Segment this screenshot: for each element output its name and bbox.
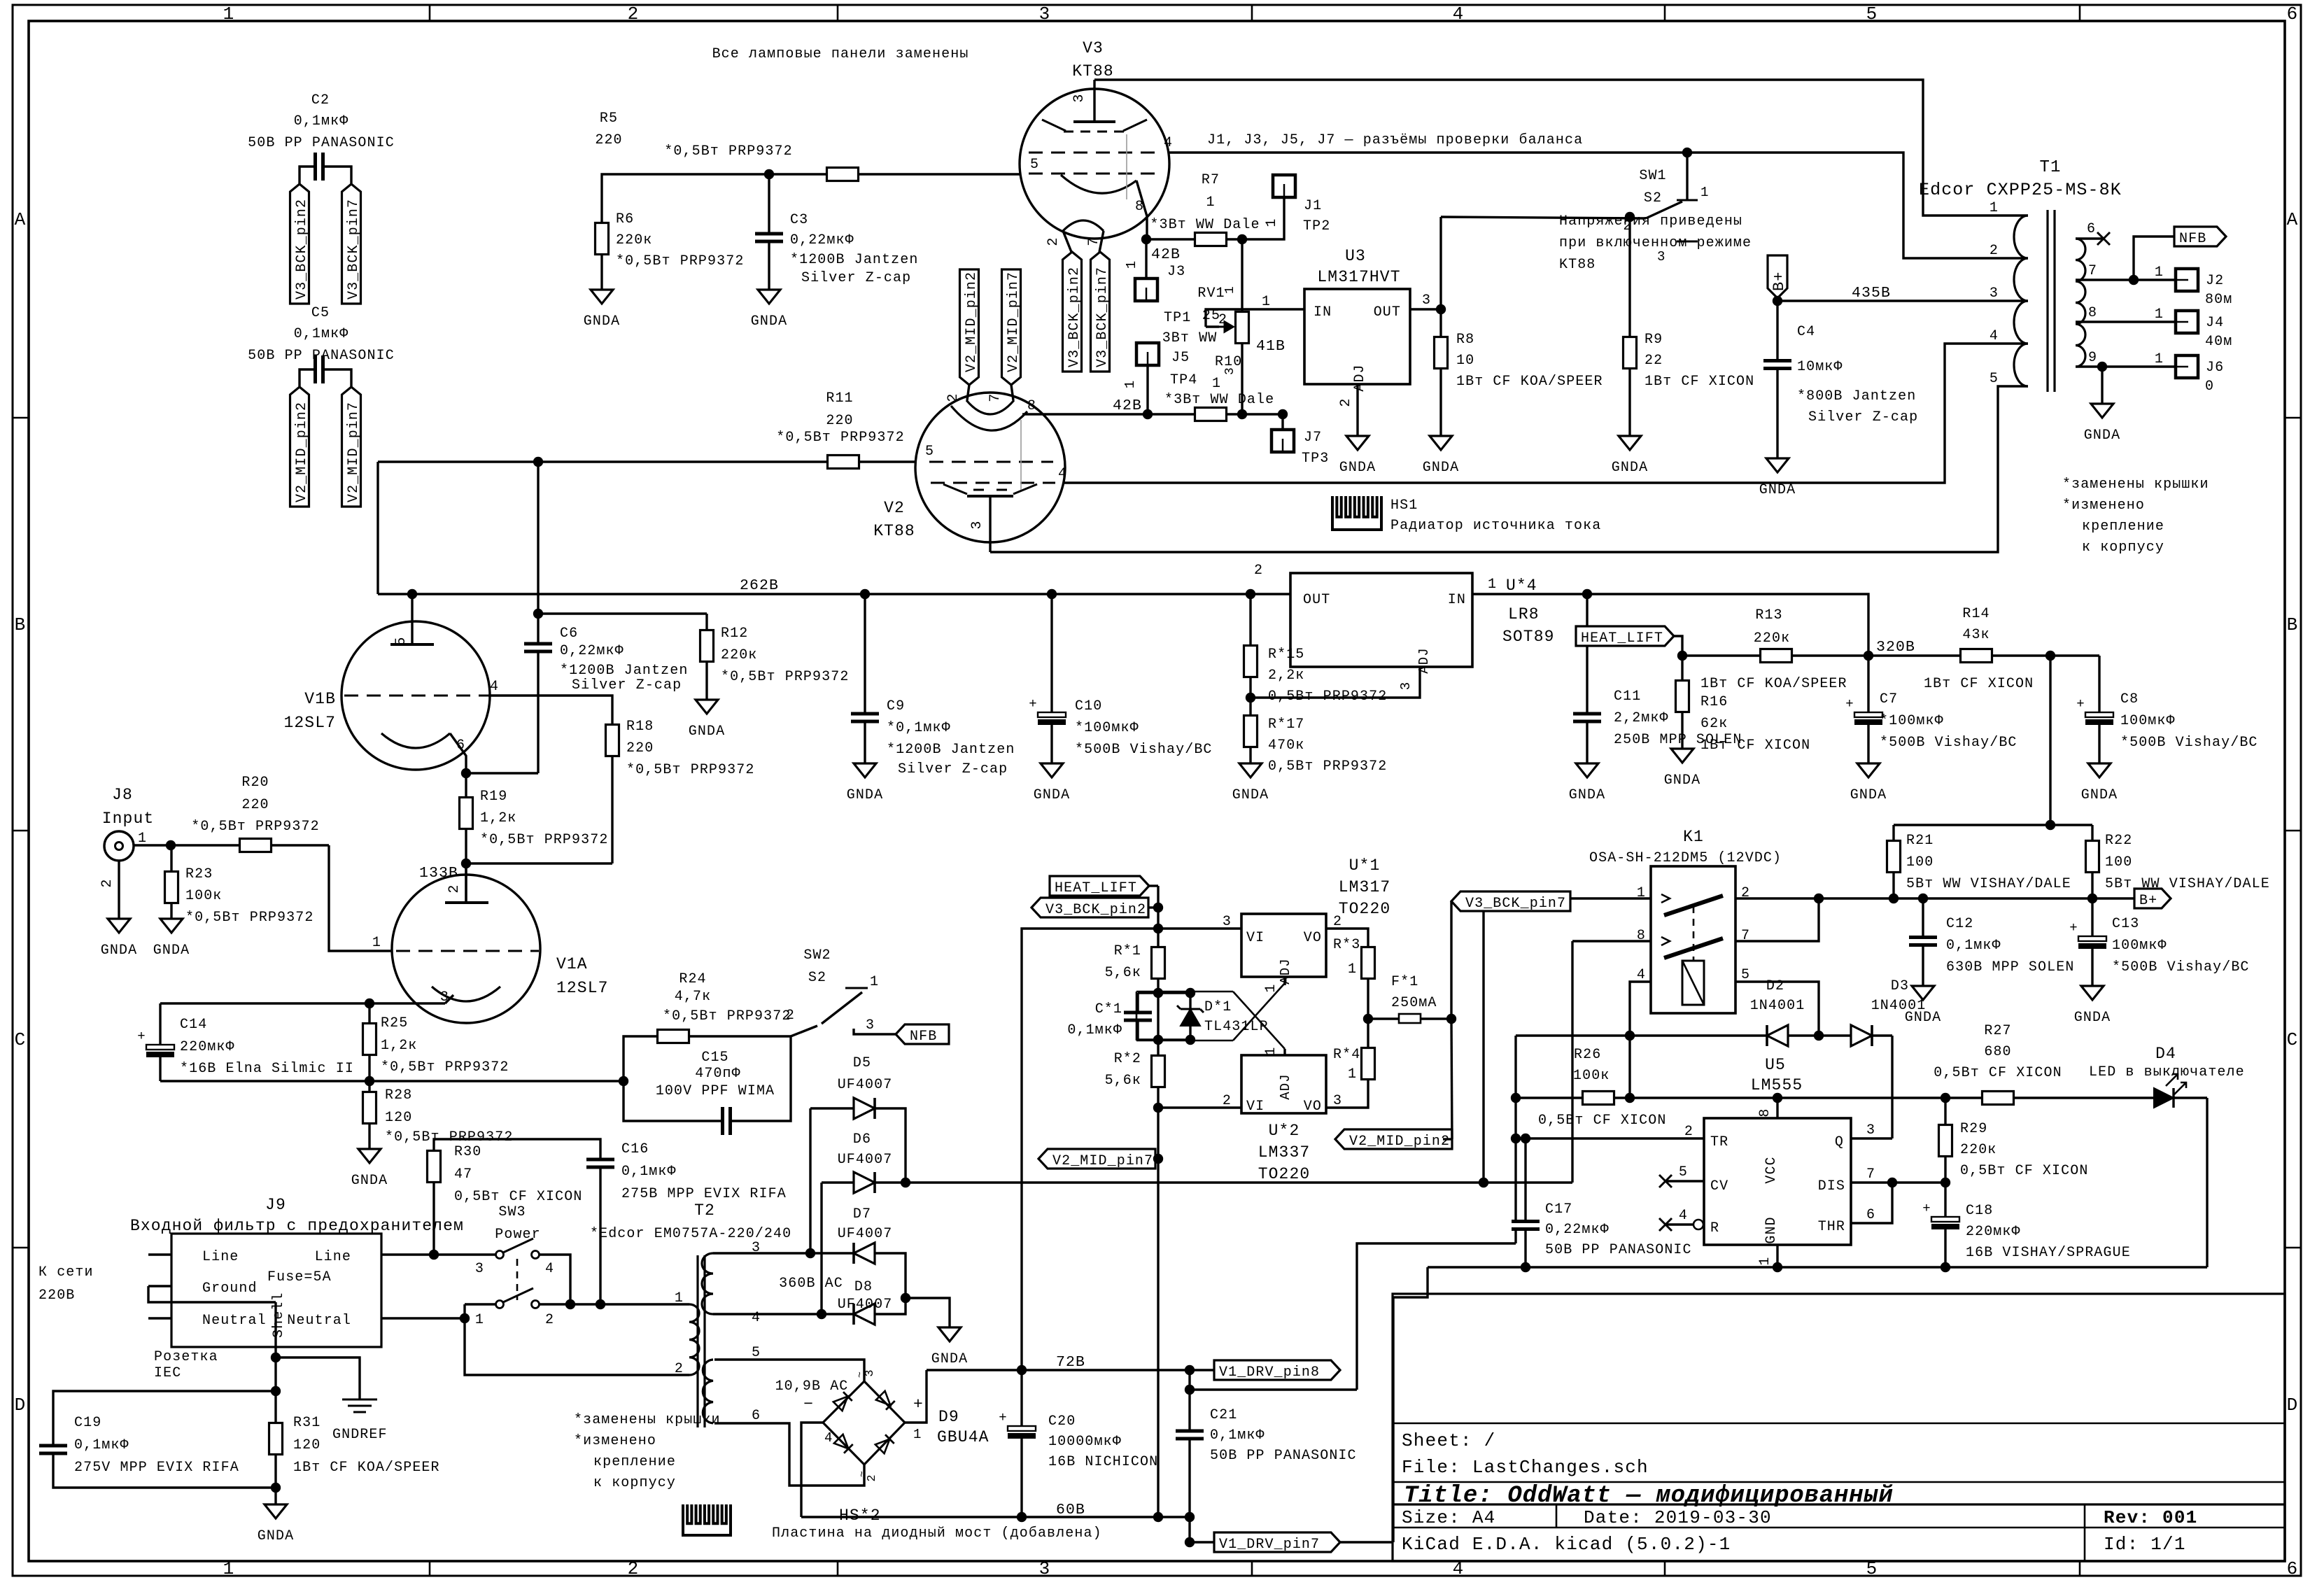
svg-text:V3_BCK_pin2: V3_BCK_pin2	[294, 199, 310, 299]
svg-text:*0,5Вт PRP9372: *0,5Вт PRP9372	[776, 430, 904, 446]
svg-text:*3Вт WW Dale: *3Вт WW Dale	[1150, 217, 1260, 233]
svg-text:IEC: IEC	[154, 1365, 181, 1381]
svg-text:LR8: LR8	[1508, 605, 1540, 623]
svg-text:GNDA: GNDA	[351, 1173, 388, 1189]
svg-text:1: 1	[1757, 1256, 1773, 1265]
svg-text:42B: 42B	[1151, 246, 1181, 263]
svg-text:5Вт WW VISHAY/DALE: 5Вт WW VISHAY/DALE	[1906, 876, 2071, 892]
svg-text:*0,5Вт PRP9372: *0,5Вт PRP9372	[191, 819, 319, 835]
svg-text:C7: C7	[1880, 691, 1898, 707]
svg-text:12SL7: 12SL7	[556, 979, 609, 997]
svg-text:GNDA: GNDA	[931, 1351, 968, 1367]
svg-text:Rev: 001: Rev: 001	[2104, 1507, 2197, 1528]
svg-text:D5: D5	[853, 1055, 871, 1071]
svg-text:R: R	[1710, 1220, 1719, 1236]
svg-text:GBU4A: GBU4A	[937, 1428, 990, 1446]
svg-text:J3: J3	[1167, 264, 1185, 280]
svg-text:3: 3	[1039, 3, 1051, 24]
svg-text:220к: 220к	[1960, 1142, 1996, 1158]
svg-text:Радиатор источника тока: Радиатор источника тока	[1390, 518, 1601, 534]
svg-text:4: 4	[545, 1261, 554, 1277]
svg-text:GNDA: GNDA	[258, 1528, 294, 1544]
svg-text:SW1: SW1	[1639, 168, 1666, 184]
svg-text:100: 100	[2105, 854, 2132, 870]
svg-text:GND: GND	[1763, 1216, 1780, 1243]
svg-text:5: 5	[1990, 371, 1999, 387]
svg-text:Напряжения приведены: Напряжения приведены	[1559, 213, 1742, 230]
svg-text:V3_BCK_pin7: V3_BCK_pin7	[346, 199, 362, 299]
svg-text:HS*2: HS*2	[839, 1507, 881, 1525]
svg-text:OUT: OUT	[1374, 304, 1401, 320]
svg-text:2: 2	[1338, 397, 1354, 407]
svg-text:*заменены крышки: *заменены крышки	[574, 1412, 721, 1428]
svg-text:1: 1	[1700, 185, 1710, 200]
svg-text:NFB: NFB	[2179, 231, 2206, 247]
svg-text:1: 1	[2155, 351, 2164, 367]
svg-text:220: 220	[626, 740, 654, 756]
svg-text:5,6к: 5,6к	[1105, 965, 1141, 981]
svg-text:1: 1	[138, 831, 147, 847]
svg-text:6: 6	[456, 738, 465, 754]
svg-text:0,1мкФ: 0,1мкФ	[74, 1437, 129, 1453]
svg-text:V2_MID_pin7: V2_MID_pin7	[1006, 271, 1022, 372]
svg-text:C12: C12	[1946, 916, 1973, 932]
svg-text:C9: C9	[887, 698, 905, 714]
svg-text:GNDA: GNDA	[1339, 460, 1376, 476]
svg-text:22: 22	[1645, 353, 1663, 369]
svg-text:C3: C3	[790, 212, 808, 228]
svg-text:R10: R10	[1215, 354, 1242, 370]
svg-text:1,2к: 1,2к	[480, 810, 516, 826]
svg-text:TL431LP: TL431LP	[1204, 1019, 1269, 1035]
svg-text:0,1мкФ: 0,1мкФ	[1946, 938, 2001, 954]
svg-text:2: 2	[1218, 312, 1227, 328]
svg-text:100: 100	[1906, 854, 1934, 870]
svg-text:VO: VO	[1304, 930, 1322, 946]
svg-text:C: C	[15, 1029, 27, 1050]
svg-text:Silver Z-cap: Silver Z-cap	[801, 270, 911, 286]
svg-text:UF4007: UF4007	[838, 1077, 893, 1093]
svg-text:2: 2	[786, 1008, 795, 1024]
svg-text:+: +	[913, 1395, 924, 1413]
svg-text:при включенном режиме: при включенном режиме	[1559, 235, 1752, 251]
svg-text:−: −	[803, 1395, 814, 1413]
svg-text:D9: D9	[938, 1408, 959, 1426]
svg-text:KT88: KT88	[1559, 257, 1596, 273]
svg-text:J7: J7	[1304, 430, 1322, 446]
svg-text:TP4: TP4	[1170, 372, 1197, 388]
svg-text:R25: R25	[381, 1015, 408, 1031]
svg-text:+: +	[2076, 696, 2084, 712]
svg-text:220: 220	[595, 132, 622, 148]
svg-text:VO: VO	[1304, 1099, 1322, 1115]
svg-text:C19: C19	[74, 1415, 101, 1431]
svg-text:40м: 40м	[2205, 334, 2232, 350]
svg-text:R21: R21	[1906, 833, 1934, 849]
svg-text:1: 1	[1264, 218, 1280, 227]
svg-text:*изменено: *изменено	[574, 1433, 656, 1449]
svg-text:Line: Line	[202, 1249, 239, 1265]
svg-text:Входной фильтр с предохранител: Входной фильтр с предохранителем	[130, 1217, 464, 1235]
svg-text:Title: OddWatt — модифицирован: Title: OddWatt — модифицированный	[1404, 1483, 1894, 1509]
svg-text:R28: R28	[385, 1087, 412, 1103]
svg-text:R29: R29	[1960, 1121, 1987, 1137]
svg-text:GNDA: GNDA	[584, 313, 620, 330]
svg-text:A: A	[2287, 209, 2299, 230]
svg-text:470к: 470к	[1268, 738, 1304, 754]
svg-text:2,2мкФ: 2,2мкФ	[1614, 710, 1669, 726]
svg-text:Input: Input	[102, 810, 155, 828]
svg-text:2: 2	[945, 393, 962, 402]
svg-text:V3_BCK_pin7: V3_BCK_pin7	[1465, 896, 1566, 912]
svg-text:2: 2	[1045, 237, 1062, 246]
svg-text:7: 7	[987, 393, 1003, 402]
svg-text:Fuse=5A: Fuse=5A	[267, 1269, 332, 1285]
svg-text:V1_DRV_pin8: V1_DRV_pin8	[1219, 1364, 1320, 1381]
svg-text:16B NICHICON: 16B NICHICON	[1048, 1454, 1158, 1470]
svg-text:Size: A4: Size: A4	[1402, 1507, 1495, 1528]
svg-text:R5: R5	[600, 111, 618, 127]
svg-text:0,1мкФ: 0,1мкФ	[294, 113, 349, 129]
svg-text:B: B	[2287, 614, 2299, 635]
svg-text:SOT89: SOT89	[1502, 628, 1555, 646]
svg-text:SW2: SW2	[803, 947, 831, 964]
svg-text:DIS: DIS	[1818, 1178, 1845, 1194]
svg-text:C18: C18	[1966, 1203, 1993, 1219]
svg-text:V1B: V1B	[304, 690, 336, 708]
svg-text:D: D	[15, 1395, 27, 1416]
svg-text:4: 4	[1679, 1208, 1688, 1224]
svg-text:GNDA: GNDA	[1664, 773, 1700, 789]
svg-text:50B PP PANASONIC: 50B PP PANASONIC	[248, 135, 395, 151]
svg-text:220мкФ: 220мкФ	[1966, 1224, 2021, 1240]
svg-text:262B: 262B	[740, 577, 779, 594]
svg-text:*0,5Вт PRP9372: *0,5Вт PRP9372	[385, 1129, 513, 1145]
svg-text:1Вт CF KOA/SPEER: 1Вт CF KOA/SPEER	[293, 1460, 440, 1476]
svg-text:J4: J4	[2206, 315, 2224, 331]
svg-text:42B: 42B	[1113, 397, 1142, 414]
svg-text:V1_DRV_pin7: V1_DRV_pin7	[1219, 1537, 1320, 1553]
svg-text:2: 2	[1223, 1093, 1232, 1109]
svg-text:2: 2	[1741, 885, 1750, 901]
svg-text:R19: R19	[480, 789, 507, 805]
svg-text:41B: 41B	[1256, 338, 1286, 355]
svg-text:680: 680	[1984, 1044, 2011, 1060]
svg-text:~: ~	[857, 1470, 868, 1477]
svg-text:VI: VI	[1246, 930, 1265, 946]
svg-text:J2: J2	[2206, 273, 2224, 289]
svg-text:OSA-SH-212DM5 (12VDC): OSA-SH-212DM5 (12VDC)	[1589, 850, 1782, 866]
svg-text:Пластина на диодный мост (доба: Пластина на диодный мост (добавлена)	[772, 1525, 1102, 1542]
svg-text:C17: C17	[1545, 1201, 1572, 1218]
svg-text:3: 3	[1657, 249, 1666, 264]
svg-text:R*17: R*17	[1268, 717, 1304, 733]
svg-text:3: 3	[1866, 1122, 1875, 1138]
svg-text:1: 1	[2155, 264, 2164, 281]
svg-text:V3_BCK_pin2: V3_BCK_pin2	[1045, 902, 1146, 918]
svg-text:C: C	[2287, 1029, 2299, 1050]
svg-text:*0,1мкФ: *0,1мкФ	[887, 720, 951, 736]
svg-text:220В: 220В	[38, 1288, 75, 1304]
svg-text:100мкФ: 100мкФ	[2112, 938, 2167, 954]
svg-text:470пФ: 470пФ	[695, 1066, 741, 1082]
svg-text:3: 3	[866, 1017, 875, 1034]
svg-text:7: 7	[2088, 263, 2097, 279]
svg-text:100к: 100к	[185, 888, 222, 904]
svg-text:RV1: RV1	[1197, 285, 1225, 302]
svg-text:10: 10	[1456, 353, 1474, 369]
svg-text:GNDA: GNDA	[2084, 428, 2120, 444]
svg-text:1: 1	[475, 1312, 484, 1328]
svg-text:GNDREF: GNDREF	[332, 1427, 388, 1443]
svg-text:6: 6	[752, 1408, 761, 1424]
svg-text:R9: R9	[1645, 332, 1663, 348]
svg-text:630B MPP SOLEN: 630B MPP SOLEN	[1946, 959, 2074, 975]
svg-text:1Вт CF XICON: 1Вт CF XICON	[1700, 738, 1810, 754]
svg-text:47: 47	[454, 1166, 472, 1183]
svg-text:C2: C2	[311, 92, 330, 108]
svg-text:*100мкФ: *100мкФ	[1880, 713, 1944, 729]
svg-text:VI: VI	[1246, 1099, 1265, 1115]
svg-text:S2: S2	[808, 970, 826, 986]
svg-text:R30: R30	[454, 1144, 481, 1160]
svg-text:Розетка: Розетка	[154, 1349, 218, 1365]
svg-text:V2_MID_pin2: V2_MID_pin2	[964, 271, 980, 372]
svg-text:R13: R13	[1755, 607, 1782, 623]
svg-text:Neutral: Neutral	[287, 1313, 351, 1329]
svg-text:J1, J3, J5, J7 — разъёмы прове: J1, J3, J5, J7 — разъёмы проверки баланс…	[1207, 132, 1583, 148]
svg-text:0,5Вт CF XICON: 0,5Вт CF XICON	[1960, 1163, 2088, 1179]
svg-text:*1200B Jantzen: *1200B Jantzen	[790, 252, 918, 268]
svg-text:*500B Vishay/BC: *500B Vishay/BC	[1075, 742, 1213, 758]
svg-text:220: 220	[826, 413, 853, 429]
svg-text:U*1: U*1	[1349, 856, 1381, 875]
svg-text:V2: V2	[884, 499, 905, 517]
svg-text:LM317: LM317	[1339, 878, 1391, 896]
svg-text:*100мкФ: *100мкФ	[1075, 720, 1139, 736]
svg-text:C11: C11	[1614, 689, 1641, 705]
svg-text:*500B Vishay/BC: *500B Vishay/BC	[2120, 735, 2258, 751]
svg-text:R*3: R*3	[1333, 937, 1360, 953]
svg-text:120: 120	[385, 1110, 412, 1126]
svg-text:Ground: Ground	[202, 1281, 258, 1297]
svg-text:6: 6	[2287, 3, 2299, 24]
svg-text:50B PP PANASONIC: 50B PP PANASONIC	[1545, 1242, 1692, 1258]
svg-text:120: 120	[293, 1437, 321, 1453]
svg-text:3: 3	[1422, 292, 1431, 309]
svg-text:CV: CV	[1710, 1178, 1728, 1194]
svg-text:GNDA: GNDA	[1232, 787, 1269, 803]
svg-text:360B AC: 360B AC	[779, 1276, 843, 1292]
svg-text:TP2: TP2	[1303, 218, 1330, 234]
svg-text:*0,5Вт PRP9372: *0,5Вт PRP9372	[664, 143, 792, 160]
svg-text:VCC: VCC	[1763, 1156, 1780, 1183]
svg-text:R23: R23	[185, 866, 213, 882]
svg-text:T2: T2	[694, 1201, 715, 1220]
svg-text:1: 1	[870, 974, 879, 990]
svg-text:1: 1	[913, 1427, 922, 1442]
svg-text:*0,5Вт PRP9372: *0,5Вт PRP9372	[626, 762, 754, 778]
svg-text:4,7к: 4,7к	[675, 989, 711, 1005]
svg-text:1: 1	[1122, 380, 1138, 389]
svg-text:R*1: R*1	[1114, 943, 1141, 959]
svg-text:TO220: TO220	[1258, 1165, 1311, 1183]
svg-text:GNDA: GNDA	[101, 943, 137, 959]
svg-text:2: 2	[1684, 1124, 1693, 1140]
svg-text:V3: V3	[1083, 39, 1104, 57]
svg-text:1: 1	[1223, 285, 1237, 294]
svg-text:435B: 435B	[1852, 285, 1891, 302]
svg-text:5: 5	[1679, 1164, 1688, 1180]
svg-text:Date: 2019-03-30: Date: 2019-03-30	[1584, 1507, 1772, 1528]
svg-text:C14: C14	[180, 1017, 207, 1033]
svg-text:R20: R20	[241, 775, 269, 791]
svg-text:A: A	[15, 209, 27, 230]
svg-text:C15: C15	[701, 1050, 728, 1066]
svg-text:*0,5Вт PRP9372: *0,5Вт PRP9372	[721, 669, 849, 685]
svg-text:*0,5Вт PRP9372: *0,5Вт PRP9372	[616, 253, 744, 269]
svg-text:ADJ: ADJ	[1352, 364, 1368, 391]
svg-text:1Вт CF KOA/SPEER: 1Вт CF KOA/SPEER	[1456, 374, 1603, 390]
svg-text:V3_BCK_pin2: V3_BCK_pin2	[1066, 267, 1083, 367]
svg-text:D6: D6	[853, 1131, 871, 1148]
svg-text:OUT: OUT	[1303, 592, 1330, 608]
svg-text:0,5Вт CF XICON: 0,5Вт CF XICON	[454, 1189, 582, 1205]
svg-text:HS1: HS1	[1390, 498, 1418, 514]
svg-text:3: 3	[1990, 285, 1999, 302]
svg-text:LM555: LM555	[1751, 1076, 1803, 1094]
svg-text:U5: U5	[1765, 1056, 1786, 1074]
svg-text:43к: 43к	[1962, 627, 1990, 643]
svg-text:4: 4	[1990, 328, 1999, 344]
svg-text:5: 5	[393, 636, 409, 645]
svg-text:C6: C6	[560, 626, 578, 642]
svg-text:LM337: LM337	[1258, 1143, 1311, 1162]
svg-text:Silver Z-cap: Silver Z-cap	[898, 761, 1008, 777]
svg-text:1: 1	[223, 3, 235, 24]
svg-text:U*4: U*4	[1506, 577, 1537, 595]
svg-text:1: 1	[223, 1558, 235, 1579]
svg-text:1: 1	[1637, 885, 1646, 901]
svg-text:Shell: Shell	[271, 1292, 287, 1338]
svg-text:1Вт CF KOA/SPEER: 1Вт CF KOA/SPEER	[1700, 676, 1847, 692]
svg-text:*изменено: *изменено	[2062, 498, 2145, 514]
svg-text:0,1мкФ: 0,1мкФ	[1067, 1022, 1122, 1038]
svg-text:4: 4	[1164, 135, 1173, 151]
svg-text:2: 2	[1254, 563, 1263, 579]
svg-text:TO220: TO220	[1339, 900, 1391, 918]
svg-text:GNDA: GNDA	[1850, 787, 1887, 803]
svg-text:+: +	[137, 1029, 145, 1044]
svg-text:1: 1	[1263, 1046, 1279, 1055]
svg-text:к корпусу: к корпусу	[2082, 539, 2164, 556]
svg-text:R12: R12	[721, 626, 748, 642]
svg-text:275V MPP EVIX RIFA: 275V MPP EVIX RIFA	[74, 1460, 239, 1476]
svg-text:275B MPP EVIX RIFA: 275B MPP EVIX RIFA	[621, 1186, 787, 1202]
svg-text:Все ламповые панели заменены: Все ламповые панели заменены	[712, 46, 969, 62]
svg-text:8: 8	[1757, 1108, 1773, 1117]
svg-text:2,2к: 2,2к	[1268, 668, 1304, 684]
svg-text:5: 5	[925, 444, 934, 460]
svg-text:*Edcor EM0757A-220/240: *Edcor EM0757A-220/240	[590, 1226, 791, 1242]
svg-text:3: 3	[1039, 1558, 1051, 1579]
svg-text:0: 0	[2205, 379, 2214, 395]
svg-text:R14: R14	[1962, 606, 1990, 622]
svg-text:1Вт CF XICON: 1Вт CF XICON	[1924, 676, 2034, 692]
svg-text:1N4001: 1N4001	[1750, 998, 1805, 1014]
svg-text:1: 1	[1348, 1066, 1357, 1082]
svg-text:ADJ: ADJ	[1416, 647, 1432, 674]
svg-text:4: 4	[824, 1430, 833, 1446]
svg-text:R8: R8	[1456, 332, 1474, 348]
svg-text:10,9B AC: 10,9B AC	[775, 1378, 849, 1395]
svg-text:7: 7	[1086, 237, 1102, 246]
svg-text:Q: Q	[1835, 1134, 1844, 1150]
svg-text:IN: IN	[1448, 592, 1466, 608]
svg-text:крепление: крепление	[2082, 519, 2164, 535]
svg-text:SW3: SW3	[498, 1204, 526, 1220]
svg-text:D7: D7	[853, 1206, 871, 1222]
svg-text:J5: J5	[1171, 350, 1190, 366]
svg-text:1: 1	[1990, 200, 1999, 216]
svg-text:Silver Z-cap: Silver Z-cap	[1808, 409, 1918, 425]
svg-text:T1: T1	[2039, 158, 2061, 177]
svg-text:D2: D2	[1766, 978, 1784, 994]
svg-text:0,22мкФ: 0,22мкФ	[1545, 1222, 1610, 1238]
svg-text:К сети: К сети	[38, 1264, 94, 1281]
svg-text:100мкФ: 100мкФ	[2120, 713, 2176, 729]
svg-text:2: 2	[675, 1361, 684, 1377]
svg-text:U3: U3	[1345, 247, 1366, 265]
svg-text:B+: B+	[1770, 271, 1788, 291]
svg-text:HEAT_LIFT: HEAT_LIFT	[1055, 880, 1137, 896]
svg-text:GNDA: GNDA	[2074, 1010, 2111, 1026]
svg-text:7: 7	[1866, 1166, 1875, 1183]
svg-text:0,22мкФ: 0,22мкФ	[790, 232, 854, 248]
svg-text:320B: 320B	[1876, 639, 1915, 656]
svg-text:2: 2	[545, 1312, 554, 1328]
svg-text:1: 1	[2155, 306, 2164, 323]
svg-text:V2_MID_pin2: V2_MID_pin2	[1349, 1134, 1450, 1150]
svg-text:4: 4	[752, 1310, 761, 1326]
svg-text:*500B Vishay/BC: *500B Vishay/BC	[2112, 959, 2250, 975]
svg-text:+: +	[1922, 1201, 1930, 1216]
svg-text:250мА: 250мА	[1391, 995, 1437, 1011]
svg-text:1: 1	[1206, 195, 1215, 211]
svg-text:C10: C10	[1075, 698, 1102, 714]
svg-text:TP3: TP3	[1302, 451, 1329, 467]
svg-text:220к: 220к	[616, 232, 652, 248]
svg-text:1: 1	[675, 1290, 684, 1306]
svg-text:V1A: V1A	[556, 955, 588, 973]
svg-text:80м: 80м	[2205, 292, 2232, 308]
svg-text:220к: 220к	[721, 647, 757, 663]
svg-text:GNDA: GNDA	[1612, 460, 1648, 476]
svg-text:D8: D8	[854, 1279, 873, 1295]
svg-text:R7: R7	[1202, 172, 1220, 188]
svg-text:0,5Вт PRP9372: 0,5Вт PRP9372	[1268, 759, 1387, 775]
svg-text:V2_MID_pin7: V2_MID_pin7	[1052, 1153, 1153, 1169]
svg-text:GNDA: GNDA	[689, 724, 725, 740]
svg-text:8: 8	[2088, 305, 2097, 321]
svg-text:GNDA: GNDA	[1759, 482, 1796, 498]
svg-text:4: 4	[1453, 3, 1465, 24]
svg-text:Line: Line	[315, 1249, 351, 1265]
svg-text:B: B	[15, 614, 27, 635]
svg-text:F*1: F*1	[1391, 974, 1418, 990]
svg-text:3: 3	[1223, 914, 1232, 930]
svg-text:Sheet: /: Sheet: /	[1402, 1430, 1495, 1451]
